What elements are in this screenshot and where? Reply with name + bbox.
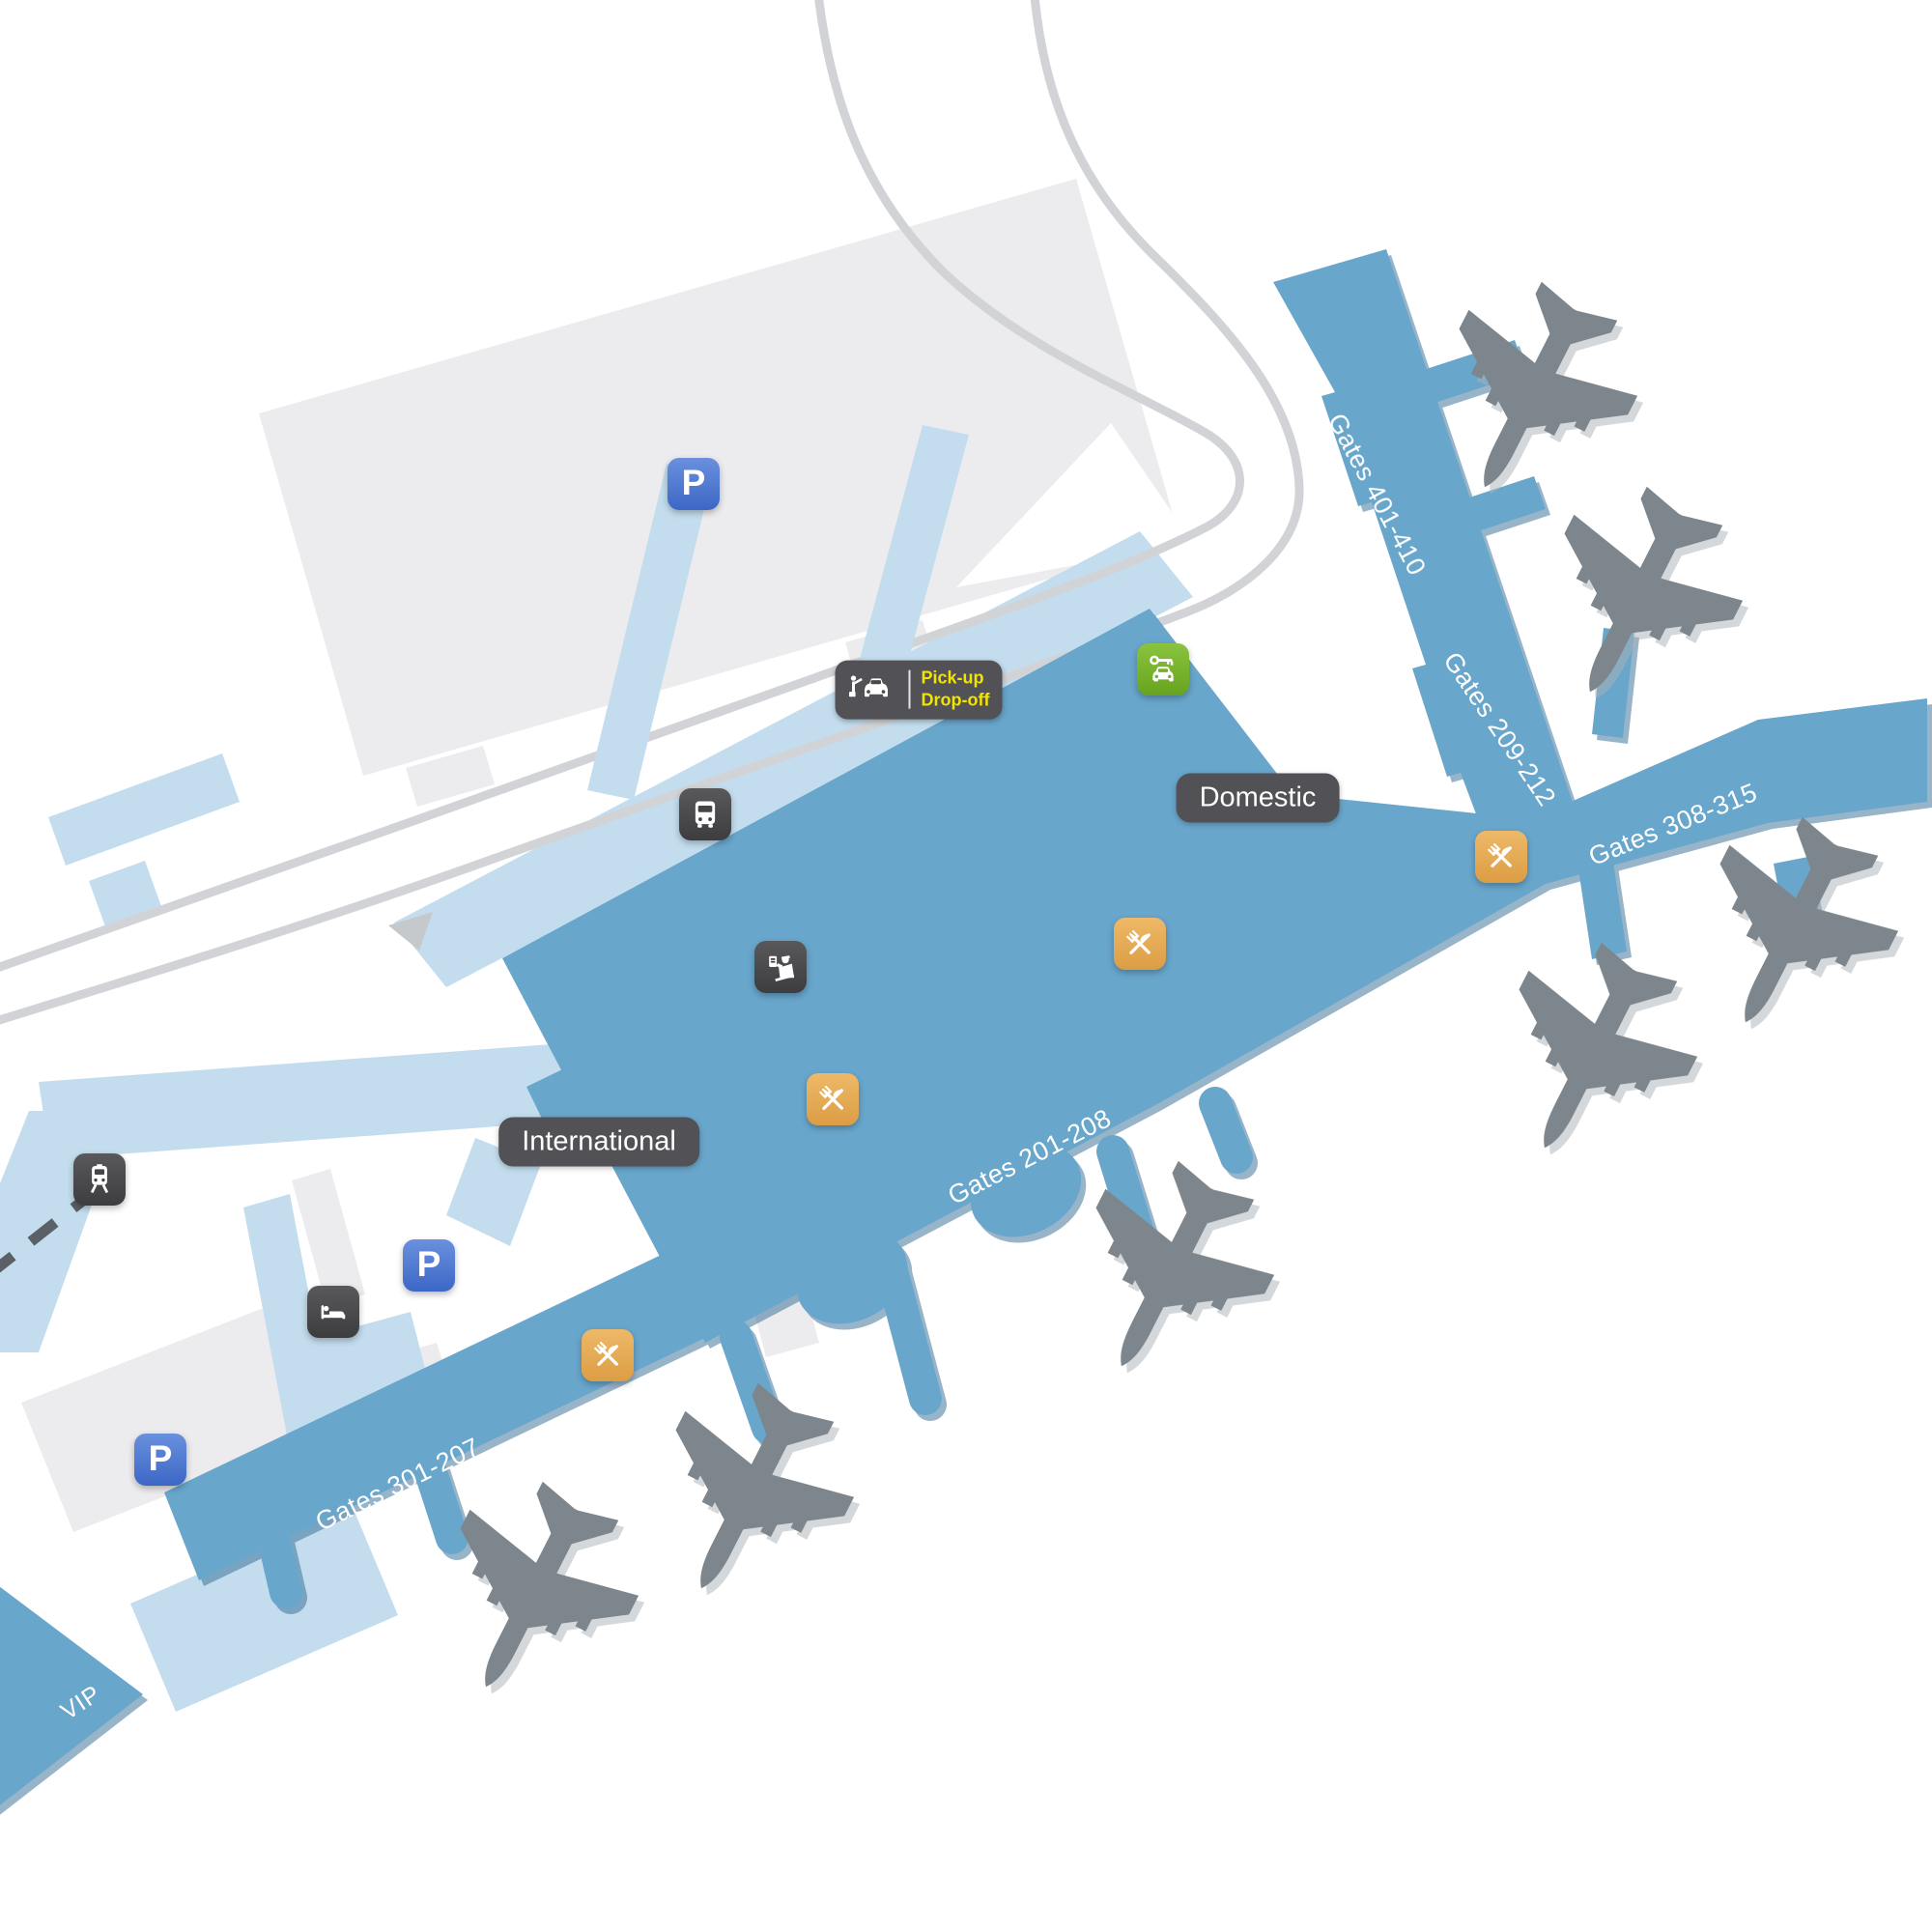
- airplane-icon: [1461, 919, 1724, 1190]
- jet-bridge: [1215, 1103, 1236, 1157]
- fork-knife-glyph: [590, 1338, 625, 1373]
- restaurant-icon: [1114, 918, 1166, 970]
- pill-divider: [909, 670, 911, 709]
- dropoff-line: Drop-off: [922, 690, 990, 712]
- international-area-label: International: [498, 1118, 699, 1167]
- fork-knife-glyph: [815, 1082, 850, 1117]
- taxi-icon: [848, 671, 898, 708]
- domestic-area-label: Domestic: [1177, 774, 1340, 823]
- restaurant-icon: [582, 1329, 634, 1381]
- fork-knife-glyph: [1122, 926, 1157, 961]
- fork-knife-glyph: [1484, 839, 1519, 874]
- bus-glyph: [688, 797, 723, 832]
- parking-icon: P: [403, 1239, 455, 1292]
- pickup-dropoff-sign: Pick-up Drop-off: [836, 661, 1003, 720]
- passport-glyph: [763, 950, 798, 984]
- passport-control-icon: [754, 941, 807, 993]
- restaurant-icon: [1475, 831, 1527, 883]
- train-icon: [73, 1153, 126, 1206]
- bed-glyph: [316, 1294, 351, 1329]
- bus-icon: [679, 788, 731, 840]
- airport-map-page: P P P: [0, 0, 1932, 1932]
- key-car-glyph: [1146, 652, 1180, 687]
- parking-icon: P: [668, 458, 720, 510]
- jet-bridge: [273, 1538, 286, 1592]
- parking-letter: P: [682, 465, 706, 503]
- parking-letter: P: [417, 1246, 441, 1285]
- parking-icon: P: [134, 1434, 186, 1486]
- rail-corridor: [39, 1043, 577, 1159]
- car-rental-icon: [1137, 643, 1189, 696]
- hotel-icon: [307, 1286, 359, 1338]
- parking-letter: P: [149, 1440, 173, 1479]
- pickup-line: Pick-up: [922, 668, 990, 690]
- airport-map: [0, 0, 1932, 1932]
- pickup-dropoff-text: Pick-up Drop-off: [922, 668, 990, 713]
- restaurant-icon: [807, 1073, 859, 1125]
- airplane-icon: [1506, 463, 1770, 734]
- train-glyph: [82, 1162, 117, 1197]
